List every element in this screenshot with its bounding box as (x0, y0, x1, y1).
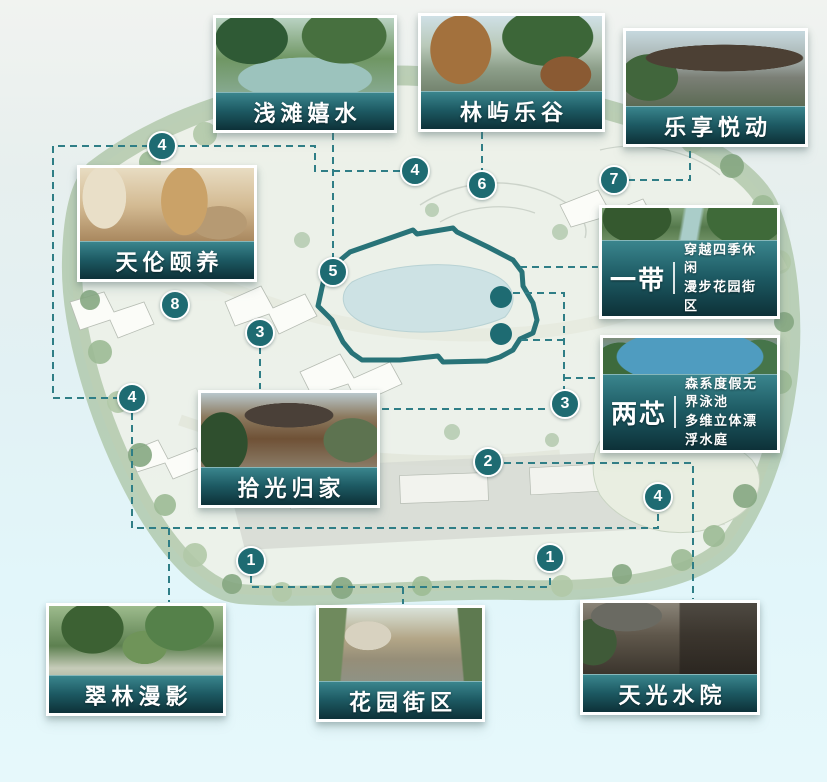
card-tianguang: 天光水院 (580, 600, 760, 715)
card-photo (319, 608, 482, 681)
card-shiguang: 拾光归家 (198, 390, 380, 508)
card-photo (583, 603, 757, 674)
map-marker: 1 (236, 546, 266, 576)
card-title: 拾光归家 (201, 467, 377, 505)
map-marker: 7 (599, 165, 629, 195)
map-marker: 1 (535, 543, 565, 573)
map-marker: 4 (147, 131, 177, 161)
card-description: 森系度假无界泳池 多维立体漂浮水庭 (685, 375, 769, 450)
map-marker: 3 (550, 389, 580, 419)
card-photo (421, 16, 602, 91)
core-dot-lower (490, 323, 512, 345)
card-title: 两芯 (611, 394, 667, 431)
banner-divider (674, 396, 676, 428)
map-marker: 5 (318, 257, 348, 287)
map-marker: 4 (643, 482, 673, 512)
map-marker: 2 (473, 447, 503, 477)
card-lexiang: 乐享悦动 (623, 28, 808, 147)
card-cuilin: 翠林漫影 (46, 603, 226, 716)
card-description-line: 多维立体漂浮水庭 (685, 412, 769, 450)
card-photo (80, 168, 254, 241)
card-title: 浅滩嬉水 (216, 92, 394, 130)
core-dot-upper (490, 286, 512, 308)
card-photo (216, 18, 394, 92)
card-title: 天光水院 (583, 674, 757, 712)
card-qiantan: 浅滩嬉水 (213, 15, 397, 133)
card-photo (626, 31, 805, 106)
map-marker: 6 (467, 170, 497, 200)
card-photo (201, 393, 377, 467)
card-photo (603, 338, 777, 374)
card-title: 乐享悦动 (626, 106, 805, 144)
card-yidai: 一带 穿越四季休闲 漫步花园街区 (599, 205, 780, 319)
card-description: 穿越四季休闲 漫步花园街区 (684, 241, 769, 316)
card-tianlun: 天伦颐养 (77, 165, 257, 282)
card-liangxin: 两芯 森系度假无界泳池 多维立体漂浮水庭 (600, 335, 780, 453)
card-description-line: 森系度假无界泳池 (685, 375, 769, 413)
card-title: 天伦颐养 (80, 241, 254, 279)
site-plan-page: 4 4 6 7 5 8 3 3 4 2 4 1 1 浅滩嬉水 林屿乐谷 乐享悦动… (0, 0, 827, 782)
map-marker: 4 (117, 383, 147, 413)
map-marker: 4 (400, 156, 430, 186)
central-pond (343, 265, 513, 332)
card-banner: 一带 穿越四季休闲 漫步花园街区 (602, 240, 777, 316)
card-description-line: 漫步花园街区 (684, 278, 769, 316)
card-photo (602, 208, 777, 240)
banner-divider (673, 262, 675, 294)
card-title: 翠林漫影 (49, 675, 223, 713)
card-photo (49, 606, 223, 675)
card-linyu: 林屿乐谷 (418, 13, 605, 132)
card-description-line: 穿越四季休闲 (684, 241, 769, 279)
map-marker: 8 (160, 290, 190, 320)
map-marker: 3 (245, 318, 275, 348)
card-title: 一带 (610, 260, 666, 297)
card-title: 花园街区 (319, 681, 482, 719)
card-banner: 两芯 森系度假无界泳池 多维立体漂浮水庭 (603, 374, 777, 450)
card-title: 林屿乐谷 (421, 91, 602, 129)
card-huayuan: 花园街区 (316, 605, 485, 722)
